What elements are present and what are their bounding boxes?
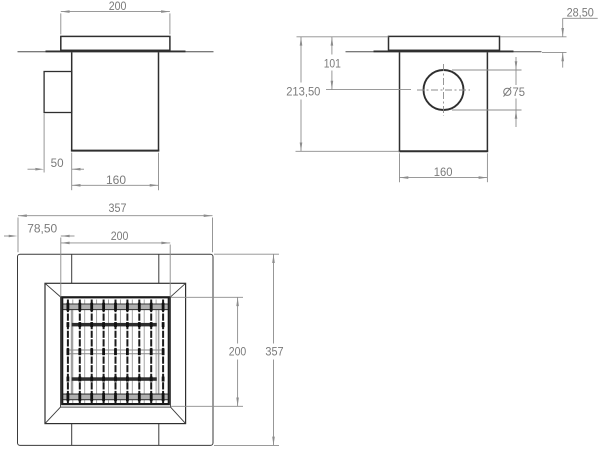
svg-text:28,50: 28,50 (567, 6, 594, 20)
svg-text:50: 50 (51, 156, 64, 170)
svg-text:357: 357 (109, 201, 127, 215)
svg-text:78,50: 78,50 (27, 222, 57, 236)
svg-text:200: 200 (109, 0, 127, 13)
svg-text:200: 200 (111, 229, 129, 243)
svg-text:213,50: 213,50 (286, 84, 320, 98)
svg-text:200: 200 (229, 344, 247, 358)
svg-text:75: 75 (513, 85, 526, 99)
svg-text:160: 160 (434, 165, 453, 179)
svg-text:357: 357 (265, 344, 283, 358)
svg-text:101: 101 (324, 56, 341, 70)
svg-text:160: 160 (106, 173, 126, 187)
